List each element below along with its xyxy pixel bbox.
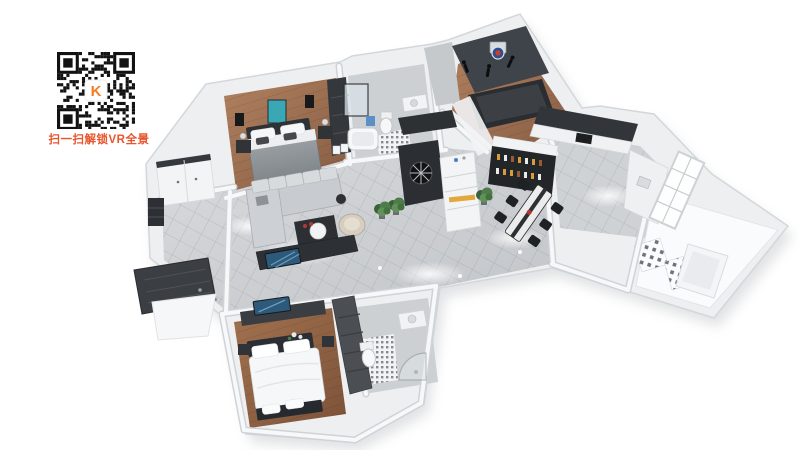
nightstand xyxy=(238,344,250,355)
blue-stool xyxy=(366,116,375,126)
table-lamp xyxy=(240,133,246,139)
nightstand xyxy=(318,126,333,139)
shelf-unit xyxy=(148,198,164,226)
shower-enclosure xyxy=(344,84,368,116)
sink-basin xyxy=(411,100,418,107)
svg-text:K: K xyxy=(91,83,102,100)
fan-art-icon xyxy=(410,162,432,184)
page: K 扫一扫解锁VR全景 xyxy=(0,0,800,450)
qr-code: K xyxy=(57,52,135,129)
sink-basin xyxy=(408,315,416,323)
nightstand xyxy=(322,336,334,347)
wall-sconce xyxy=(235,113,244,126)
toilet xyxy=(380,118,392,134)
door-handle-icon xyxy=(198,288,202,292)
entry-steps xyxy=(152,294,216,340)
qr-logo: K xyxy=(85,80,107,101)
shower-drain-icon xyxy=(414,370,418,374)
qr-caption: 扫一扫解锁VR全景 xyxy=(38,131,160,147)
wall-sconce xyxy=(305,95,314,108)
wall-art xyxy=(268,100,286,123)
table-lamp xyxy=(322,119,328,125)
side-table xyxy=(336,194,346,204)
nightstand xyxy=(236,140,251,153)
